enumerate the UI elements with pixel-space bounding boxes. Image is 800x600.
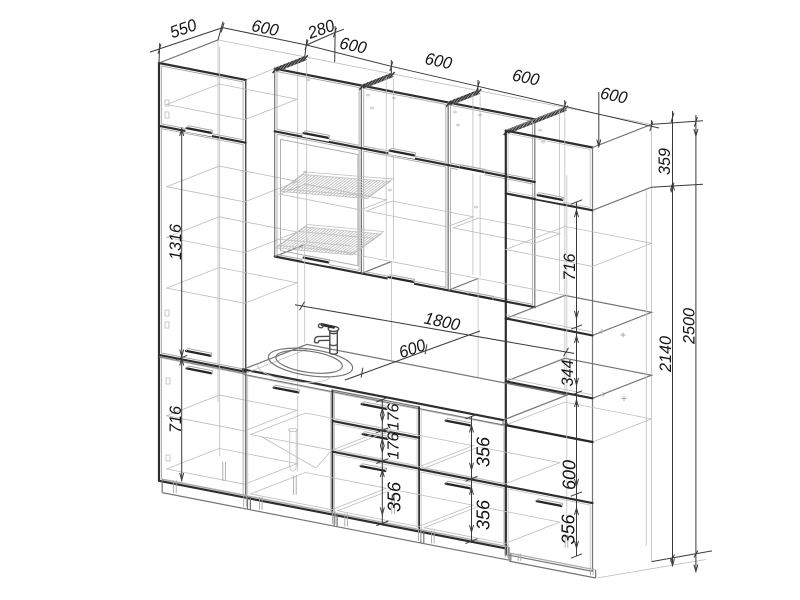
svg-text:176: 176	[385, 432, 402, 459]
svg-text:356: 356	[474, 499, 494, 530]
svg-text:2140: 2140	[656, 335, 675, 372]
svg-text:359: 359	[655, 147, 674, 175]
svg-text:176: 176	[385, 403, 402, 430]
svg-text:344: 344	[558, 360, 577, 387]
svg-text:1316: 1316	[166, 223, 185, 260]
svg-text:716: 716	[560, 253, 579, 281]
svg-text:356: 356	[384, 481, 404, 512]
svg-text:356: 356	[474, 436, 494, 467]
svg-text:2500: 2500	[680, 307, 699, 344]
svg-text:716: 716	[166, 405, 185, 433]
svg-text:600: 600	[560, 460, 580, 490]
svg-text:356: 356	[559, 514, 579, 545]
